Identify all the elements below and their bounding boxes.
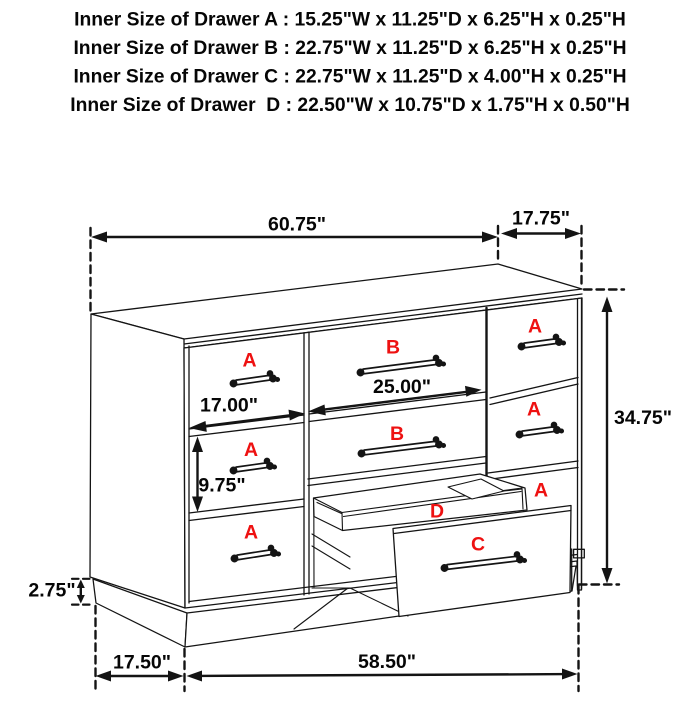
svg-text:C: C bbox=[471, 534, 485, 556]
svg-text:34.75": 34.75" bbox=[614, 407, 672, 429]
svg-text:A: A bbox=[244, 522, 258, 544]
svg-text:A: A bbox=[534, 480, 548, 502]
svg-text:2.75": 2.75" bbox=[28, 580, 75, 602]
svg-text:17.00": 17.00" bbox=[200, 395, 258, 417]
svg-text:60.75": 60.75" bbox=[268, 214, 326, 236]
svg-text:17.50": 17.50" bbox=[113, 652, 171, 674]
svg-text:A: A bbox=[527, 399, 541, 421]
svg-text:Inner Size of Drawer C : 22.75: Inner Size of Drawer C : 22.75"W x 11.25… bbox=[73, 67, 626, 88]
svg-text:Inner Size of Drawer D : 22.5: Inner Size of Drawer D : 22.50"W x 10.75… bbox=[70, 95, 630, 116]
svg-text:B: B bbox=[390, 423, 404, 445]
svg-text:A: A bbox=[528, 316, 542, 338]
svg-text:17.75": 17.75" bbox=[512, 208, 570, 230]
svg-text:A: A bbox=[242, 350, 256, 372]
svg-text:25.00": 25.00" bbox=[373, 376, 431, 398]
svg-text:A: A bbox=[244, 439, 258, 461]
svg-text:D: D bbox=[430, 501, 444, 523]
svg-text:9.75": 9.75" bbox=[198, 475, 245, 497]
svg-text:Inner Size of Drawer B : 22.75: Inner Size of Drawer B : 22.75"W x 11.25… bbox=[73, 38, 626, 59]
svg-text:B: B bbox=[386, 337, 400, 359]
svg-text:58.50": 58.50" bbox=[358, 651, 416, 673]
svg-text:Inner Size of Drawer A : 15.25: Inner Size of Drawer A : 15.25"W x 11.25… bbox=[74, 10, 626, 31]
